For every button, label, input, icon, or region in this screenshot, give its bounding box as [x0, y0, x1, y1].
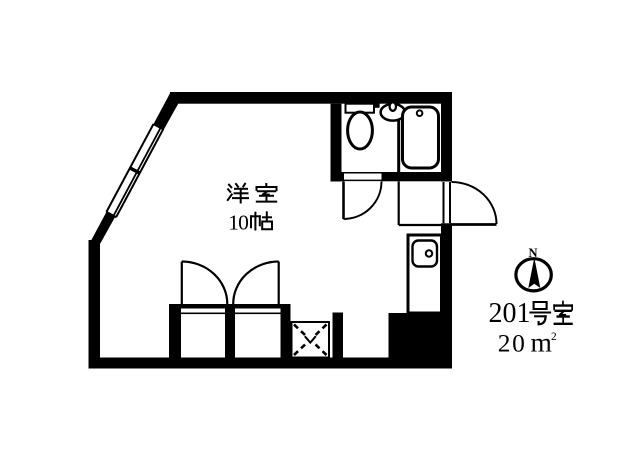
- svg-text:10: 10: [228, 210, 248, 234]
- svg-text:2: 2: [551, 331, 557, 343]
- svg-text:201: 201: [489, 298, 531, 329]
- svg-text:m: m: [531, 326, 552, 357]
- svg-text:20: 20: [498, 328, 527, 357]
